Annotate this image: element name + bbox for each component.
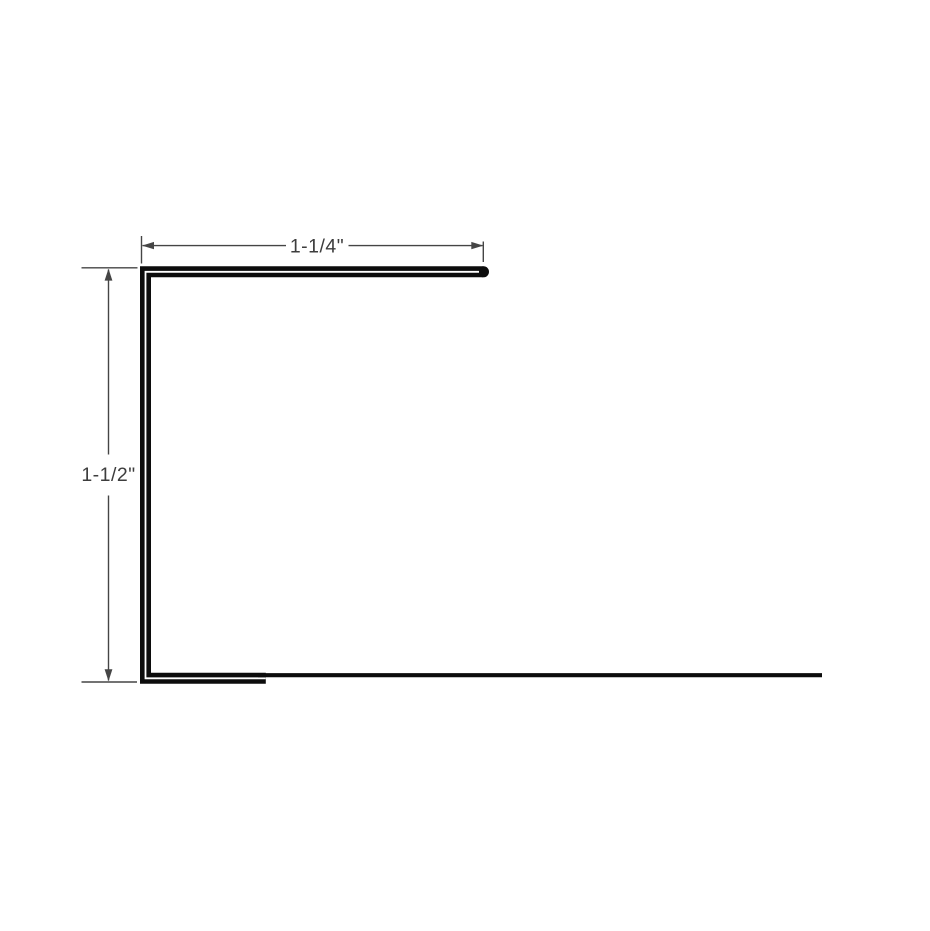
drawing-canvas: 1-1/4" 1-1/2"	[0, 0, 930, 931]
dimension-top-label: 1-1/4"	[290, 236, 344, 258]
profile-inner-gap-line	[146, 272, 480, 679]
arrowhead-left-icon	[142, 242, 154, 249]
profile-body-line	[146, 272, 484, 679]
dimension-top-width: 1-1/4"	[142, 236, 484, 264]
arrowhead-right-icon	[471, 242, 483, 249]
dimension-left-label: 1-1/2"	[81, 464, 135, 486]
arrowhead-down-icon	[105, 669, 113, 681]
dimension-left-height: 1-1/2"	[81, 268, 137, 682]
trim-profile-diagram: 1-1/4" 1-1/2"	[0, 0, 930, 931]
profile-drawing	[146, 266, 823, 678]
profile-hem-end	[478, 266, 489, 277]
arrowhead-up-icon	[105, 269, 113, 281]
